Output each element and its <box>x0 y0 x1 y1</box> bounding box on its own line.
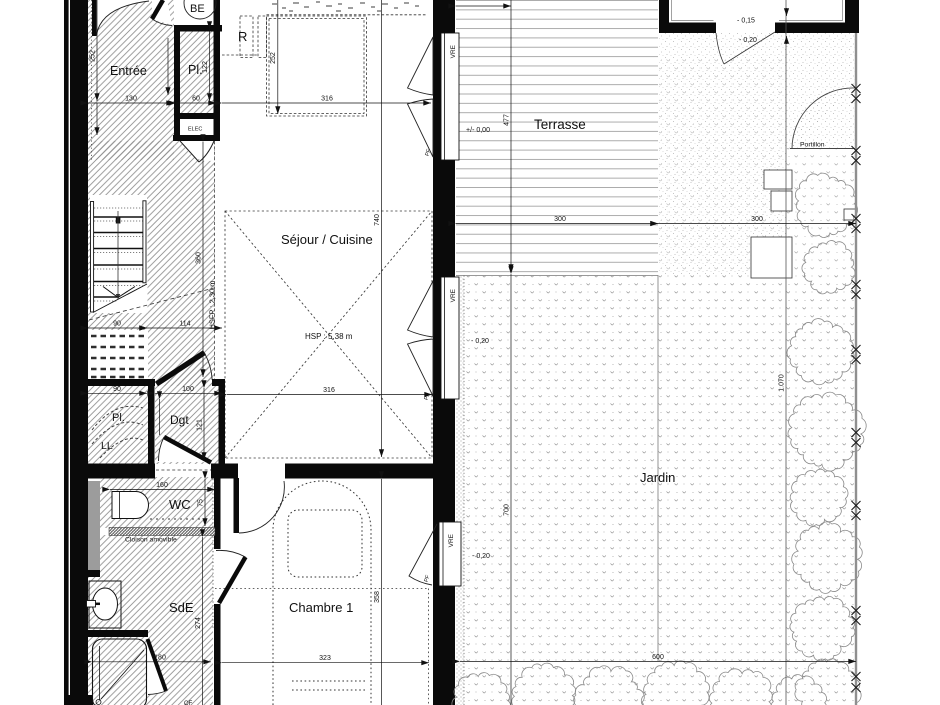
svg-text:130: 130 <box>125 96 137 103</box>
svg-text:Entrée: Entrée <box>110 64 147 78</box>
svg-text:323: 323 <box>319 655 331 662</box>
svg-text:90: 90 <box>113 386 121 393</box>
svg-text:- 0,20: - 0,20 <box>472 553 490 560</box>
svg-text:- 0,20: - 0,20 <box>739 37 757 44</box>
svg-text:VRE: VRE <box>450 288 457 302</box>
svg-text:316: 316 <box>323 387 335 394</box>
svg-text:274: 274 <box>195 617 202 629</box>
svg-text:LL: LL <box>101 440 113 452</box>
svg-text:OF: OF <box>184 701 193 705</box>
svg-text:122: 122 <box>202 61 209 73</box>
svg-text:180: 180 <box>154 654 166 661</box>
svg-text:ELEC: ELEC <box>188 127 202 133</box>
svg-text:Terrasse: Terrasse <box>534 117 586 132</box>
svg-text:HSP : 5,38 m: HSP : 5,38 m <box>305 332 353 341</box>
svg-text:75: 75 <box>198 499 205 507</box>
svg-text:R: R <box>238 29 247 44</box>
svg-text:316: 316 <box>321 96 333 103</box>
svg-text:VRE: VRE <box>448 533 455 547</box>
svg-text:360: 360 <box>196 252 203 264</box>
svg-text:Portillon: Portillon <box>800 142 825 149</box>
svg-text:Chambre 1: Chambre 1 <box>289 600 353 615</box>
svg-text:300: 300 <box>751 216 763 223</box>
svg-text:- 0,15: - 0,15 <box>737 18 755 25</box>
svg-text:WC: WC <box>169 497 191 512</box>
svg-text:Cloison amovible: Cloison amovible <box>125 537 177 544</box>
svg-text:Jardin: Jardin <box>640 470 675 485</box>
svg-text:HSFP : 2,30 m: HSFP : 2,30 m <box>208 280 217 329</box>
svg-text:SdE: SdE <box>169 600 194 615</box>
svg-text:358: 358 <box>374 591 381 603</box>
svg-text:60: 60 <box>192 96 200 103</box>
svg-text:300: 300 <box>554 216 566 223</box>
svg-text:600: 600 <box>652 654 664 661</box>
svg-text:700: 700 <box>504 504 511 516</box>
svg-text:252: 252 <box>270 52 277 64</box>
svg-text:Pl.: Pl. <box>188 63 203 77</box>
svg-text:+/- 0,00: +/- 0,00 <box>466 127 490 134</box>
svg-text:740: 740 <box>374 214 381 226</box>
svg-text:Dgt: Dgt <box>170 413 189 427</box>
svg-text:114: 114 <box>179 321 190 328</box>
svg-text:Pl.: Pl. <box>112 412 125 424</box>
svg-text:1.070: 1.070 <box>779 374 786 392</box>
svg-text:121: 121 <box>197 419 204 431</box>
svg-text:Séjour / Cuisine: Séjour / Cuisine <box>281 232 373 247</box>
svg-text:160: 160 <box>156 482 168 489</box>
svg-text:90: 90 <box>113 321 121 328</box>
svg-text:477: 477 <box>504 114 511 126</box>
svg-text:- 0,20: - 0,20 <box>471 338 489 345</box>
svg-text:BE: BE <box>190 3 205 15</box>
svg-text:100: 100 <box>182 386 194 393</box>
svg-text:252: 252 <box>90 50 97 62</box>
svg-text:VRE: VRE <box>450 44 457 58</box>
